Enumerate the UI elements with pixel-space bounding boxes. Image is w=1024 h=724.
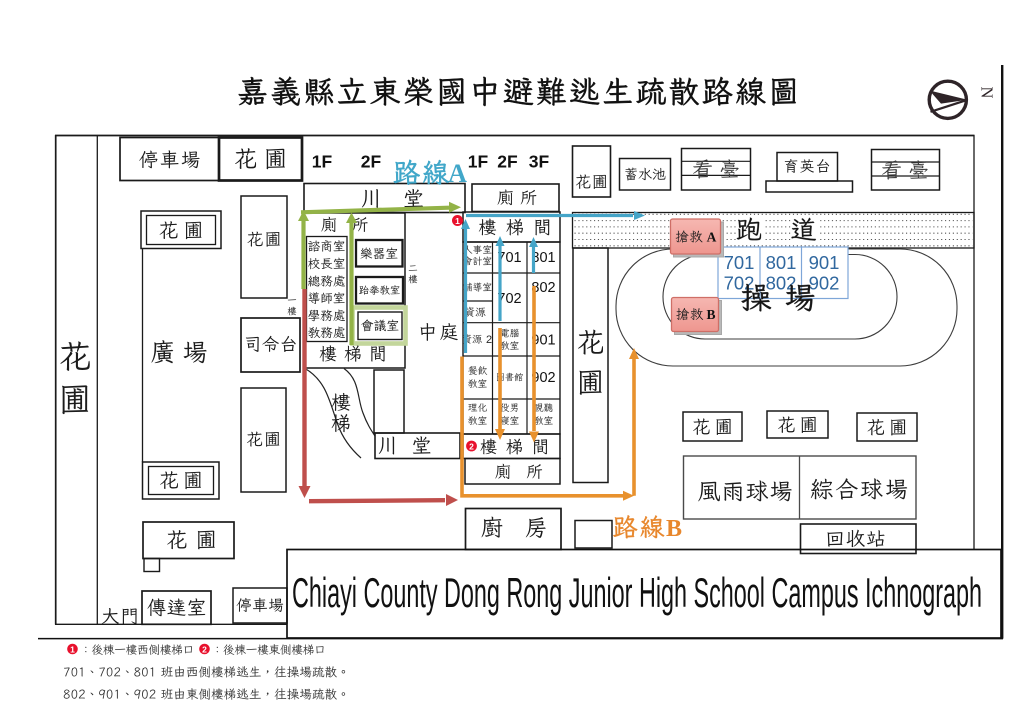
svg-text:2: 2 <box>486 334 492 346</box>
svg-text:1: 1 <box>455 216 460 226</box>
svg-text:Chiayi County Dong Rong Junior: Chiayi County Dong Rong Junior High Scho… <box>292 569 982 616</box>
svg-text:701: 701 <box>724 252 755 273</box>
svg-text:A: A <box>448 159 467 188</box>
svg-text:B: B <box>666 516 682 542</box>
svg-text:1: 1 <box>70 644 75 654</box>
svg-text:3F: 3F <box>529 152 550 172</box>
svg-text:1F: 1F <box>312 152 333 172</box>
svg-text:2F: 2F <box>497 152 518 172</box>
svg-text:A: A <box>707 230 717 245</box>
svg-text:2F: 2F <box>361 152 382 172</box>
svg-text:801: 801 <box>766 252 797 273</box>
svg-text:N: N <box>978 87 997 99</box>
svg-text:902: 902 <box>809 273 840 294</box>
svg-text:B: B <box>706 307 715 322</box>
svg-text:2: 2 <box>202 644 207 654</box>
svg-text:2: 2 <box>469 441 474 451</box>
svg-text:1F: 1F <box>468 152 489 172</box>
svg-text:702: 702 <box>724 273 755 294</box>
svg-text:901: 901 <box>809 252 840 273</box>
